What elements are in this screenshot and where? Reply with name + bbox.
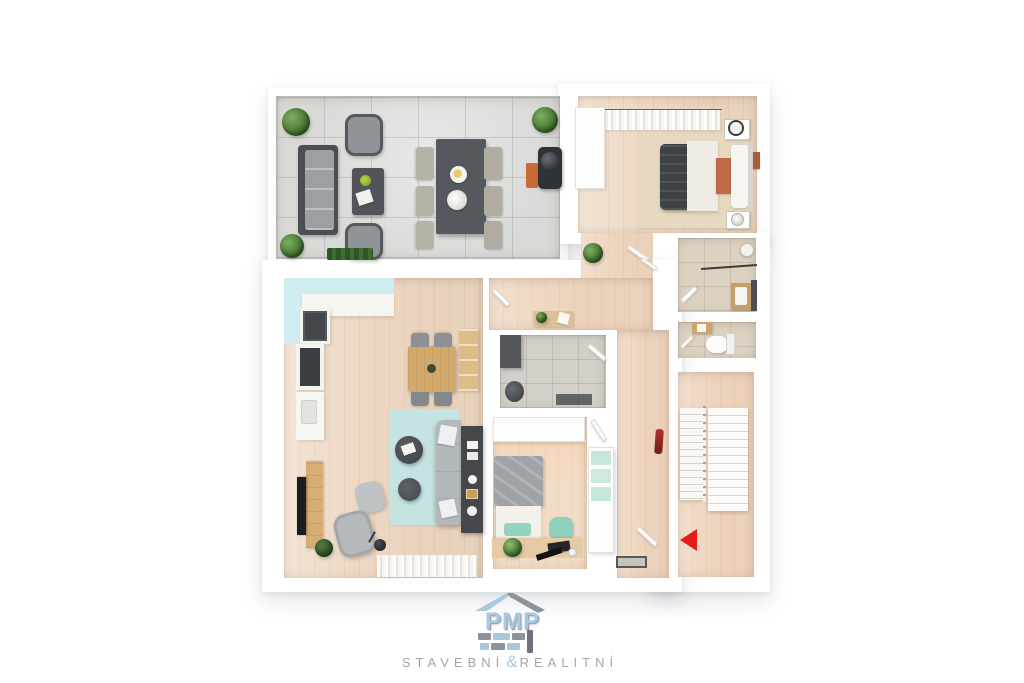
kids-chair [549, 517, 573, 540]
living-window-curtain [377, 555, 477, 577]
logo: PMP STAVEBNÍ&REALITNÍ [390, 590, 630, 676]
outdoor-dining-chair [484, 147, 502, 180]
double-bed-blanket [660, 144, 687, 210]
console-frame [467, 441, 478, 449]
stair-flight-right [708, 408, 748, 511]
living-plant [315, 539, 333, 557]
bbq-grill-cart [526, 163, 538, 188]
logo-tagline-right: REALITNÍ [520, 655, 619, 670]
dining-chair [411, 392, 429, 406]
sofa-pillow [437, 425, 457, 447]
green-plate [360, 175, 371, 186]
kids-wardrobe [493, 417, 585, 442]
laundry-basket [505, 381, 524, 402]
console-bowl [467, 506, 477, 516]
terrace-plant [532, 107, 558, 133]
console-frame [467, 452, 478, 460]
kids-bed-blanket [494, 456, 543, 506]
logo-brick [491, 643, 505, 650]
vanity-sink [735, 287, 747, 305]
logo-tagline-left: STAVEBNÍ [402, 655, 504, 670]
shelf-unit [459, 329, 478, 391]
tv-screen [297, 477, 306, 535]
hall-shelf-cell-mint [591, 487, 611, 501]
logo-chimney-bar [527, 630, 533, 653]
round-side-table [398, 478, 421, 501]
plan-canvas: PMP STAVEBNÍ&REALITNÍ [0, 0, 1024, 683]
terrace-plant [280, 234, 304, 258]
dining-chair [411, 333, 429, 347]
stair-railing [703, 406, 706, 502]
tv-board [306, 461, 323, 548]
logo-brick [512, 633, 525, 640]
shower-head [740, 243, 754, 257]
bed-orange-throw [716, 158, 731, 194]
cooktop [303, 311, 327, 341]
double-bed-duvet [687, 141, 718, 211]
toilet-tank [726, 333, 735, 355]
table-lamp [731, 213, 744, 226]
oven-front [300, 348, 320, 386]
outdoor-armchair [345, 114, 383, 156]
wall-art [753, 152, 760, 169]
planter-hedge [327, 248, 373, 260]
bed-pillows [731, 144, 748, 208]
bathroom-mirror [751, 280, 757, 311]
logo-brick [478, 633, 491, 640]
outdoor-dining-table [436, 139, 486, 234]
outdoor-dining-chair [416, 221, 434, 249]
bbq-grill-lid [541, 152, 559, 170]
hall-shelf-cell-mint [591, 451, 611, 465]
logo-brick [480, 643, 489, 650]
entry-doormat [616, 556, 647, 568]
logo-tagline: STAVEBNÍ&REALITNÍ [390, 652, 630, 672]
bedroom-wardrobe [575, 107, 605, 189]
hallway-floor-right [617, 330, 669, 578]
page: { "image": { "kind": "3d-floor-plan-rend… [0, 0, 1024, 683]
alarm-clock [728, 120, 744, 136]
utility-doormat [556, 394, 592, 405]
logo-brick [493, 633, 510, 640]
outdoor-dining-chair [484, 221, 502, 249]
flower-centerpiece [447, 190, 467, 210]
kitchen-counter-accent-top [284, 278, 394, 294]
terrace-plant [282, 108, 310, 136]
utility-cabinet [500, 335, 521, 368]
console-gold-box [466, 489, 478, 499]
outdoor-sofa-cushions [305, 150, 334, 230]
bedroom-curtain [600, 110, 720, 130]
dinner-plate [450, 166, 467, 183]
outdoor-dining-chair [416, 186, 434, 216]
kitchen-sink [301, 400, 317, 424]
dining-chair [434, 333, 452, 347]
floor-lamp [374, 539, 386, 551]
sofa-pillow [438, 499, 457, 519]
console-plant [536, 312, 547, 323]
outdoor-dining-chair [416, 147, 434, 180]
logo-brick [507, 643, 520, 650]
dining-chair [434, 392, 452, 406]
toilet-bowl [706, 336, 728, 353]
logo-tagline-ampersand: & [504, 652, 519, 671]
entrance-arrow [680, 529, 697, 551]
outdoor-dining-chair [484, 186, 502, 216]
stair-flight-left [680, 408, 703, 500]
wc-shelf-item [697, 324, 706, 332]
desk-plant [503, 538, 522, 557]
desk-lamp [568, 548, 577, 557]
hall-plant [583, 243, 603, 263]
table-centerpiece [427, 364, 436, 373]
console-vase [468, 475, 477, 484]
hall-shelf-cell-mint [591, 469, 611, 483]
kids-bed-teal-pillow [504, 523, 531, 536]
